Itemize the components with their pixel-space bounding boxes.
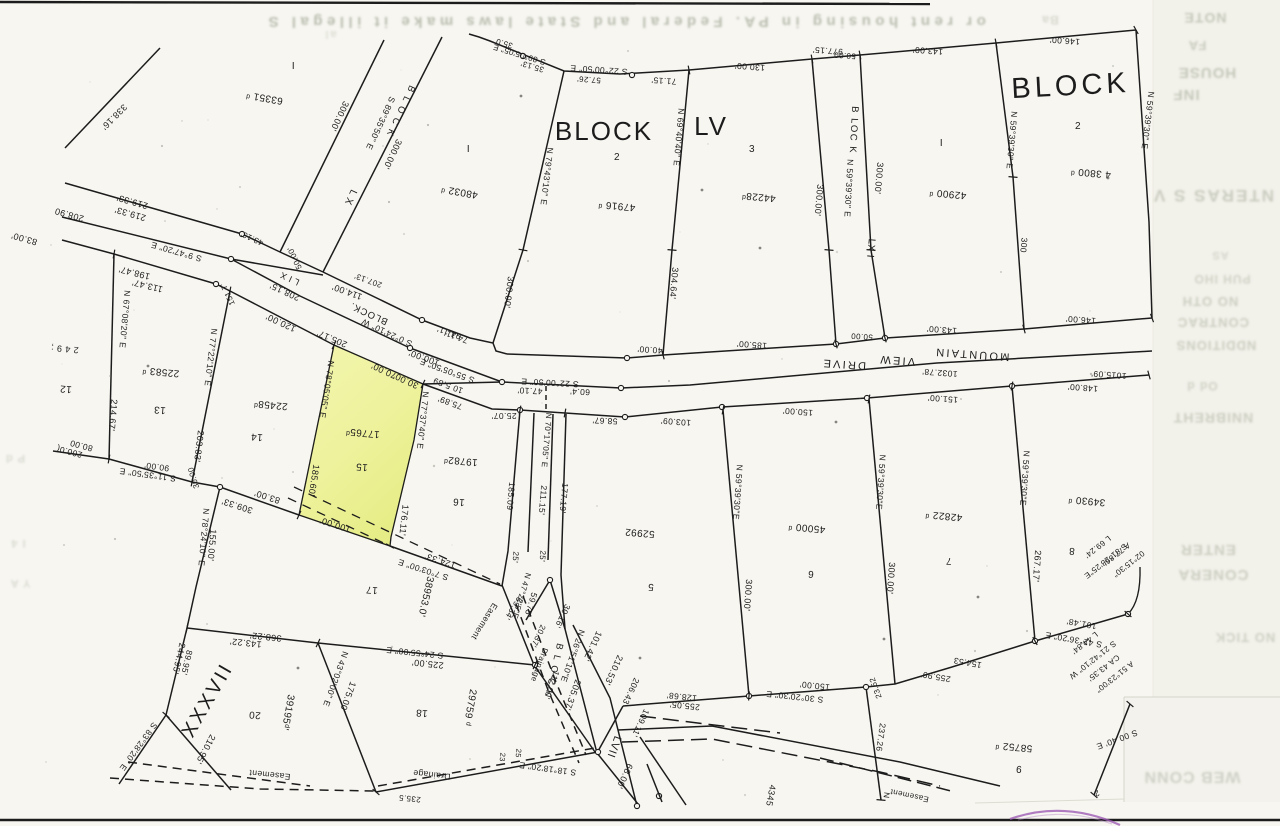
svg-text:25: 25 [514, 748, 524, 758]
svg-text:3: 3 [749, 144, 755, 155]
svg-text:151.00': 151.00' [927, 393, 958, 405]
svg-text:9: 9 [1015, 763, 1022, 774]
svg-text:NOTE: NOTE [1184, 10, 1227, 26]
svg-text:I: I [466, 142, 469, 153]
svg-text:977.15': 977.15' [812, 45, 843, 57]
svg-text:or rent housing in PA. Federal: or rent housing in PA. Federal and State… [264, 13, 986, 30]
svg-text:17: 17 [365, 583, 378, 595]
svg-text:40.00': 40.00' [637, 344, 663, 356]
svg-text:BLOCK: BLOCK [1011, 67, 1131, 105]
svg-text:6: 6 [807, 568, 814, 579]
svg-text:FA: FA [1188, 38, 1207, 53]
svg-text:23: 23 [498, 752, 508, 762]
svg-text:148.00': 148.00' [1067, 382, 1098, 394]
svg-text:NNIBREHT: NNIBREHT [1173, 410, 1253, 426]
svg-text:185.00': 185.00' [736, 339, 767, 351]
svg-text:146.00': 146.00' [1049, 35, 1080, 47]
svg-text:130.00': 130.00' [734, 61, 765, 73]
svg-text:I 4: I 4 [10, 537, 25, 549]
svg-text:CONTRAC: CONTRAC [1177, 315, 1249, 330]
svg-text:NDDITIONS: NDDITIONS [1176, 338, 1257, 353]
svg-text:150.00': 150.00' [782, 406, 813, 418]
svg-text:12: 12 [59, 382, 72, 394]
svg-text:VIEW: VIEW [878, 353, 916, 368]
svg-text:PUH IHO: PUH IHO [1193, 272, 1250, 286]
svg-text:CONERA: CONERA [1177, 566, 1248, 583]
svg-text:ENTER: ENTER [1180, 541, 1236, 558]
svg-text:P d: P d [5, 452, 25, 464]
svg-text:47.10': 47.10' [517, 385, 543, 396]
svg-text:60.4': 60.4' [570, 386, 591, 397]
svg-text:58.67': 58.67' [592, 415, 618, 426]
svg-text:13: 13 [153, 403, 166, 415]
svg-text:LV: LV [694, 111, 728, 141]
svg-text:300: 300 [1018, 237, 1029, 253]
svg-text:50.00: 50.00 [850, 331, 873, 342]
svg-text:2: 2 [1075, 121, 1081, 132]
svg-text:25': 25' [537, 550, 547, 562]
svg-text:2: 2 [614, 152, 620, 163]
svg-text:AS: AS [1211, 249, 1228, 261]
svg-text:I: I [291, 59, 294, 70]
svg-text:7: 7 [945, 555, 952, 566]
svg-text:20: 20 [248, 708, 261, 720]
svg-text:71.15': 71.15' [651, 75, 677, 87]
svg-text:Od d: Od d [1186, 379, 1217, 393]
svg-text:Ba: Ba [1041, 13, 1058, 27]
svg-text:al: al [323, 28, 336, 40]
svg-text:HOUSE: HOUSE [1178, 64, 1236, 81]
svg-text:143.00': 143.00' [926, 324, 957, 336]
svg-text:INF: INF [1172, 86, 1199, 103]
svg-text:LX I: LX I [864, 238, 877, 258]
svg-text:146.00': 146.00' [1065, 314, 1096, 326]
svg-text:Y A: Y A [10, 577, 31, 589]
svg-text:25.07': 25.07' [491, 411, 516, 421]
svg-text:18: 18 [415, 706, 428, 718]
svg-text:5: 5 [647, 581, 654, 592]
svg-text:15: 15 [355, 460, 368, 472]
svg-text:25': 25' [510, 551, 520, 563]
svg-text:16: 16 [452, 495, 465, 507]
svg-text:I: I [939, 136, 942, 147]
svg-text:143.00': 143.00' [912, 45, 943, 57]
svg-text:NO TICK: NO TICK [1215, 630, 1275, 645]
svg-text:NTERAS S V: NTERAS S V [1152, 186, 1274, 205]
svg-text:14: 14 [250, 430, 263, 442]
svg-text:NO OTH: NO OTH [1182, 294, 1239, 309]
svg-text:8: 8 [1068, 545, 1075, 556]
svg-text:103.09': 103.09' [660, 416, 691, 428]
svg-text:WEB CONN: WEB CONN [1144, 768, 1241, 785]
svg-text:BLOCK: BLOCK [555, 116, 653, 146]
